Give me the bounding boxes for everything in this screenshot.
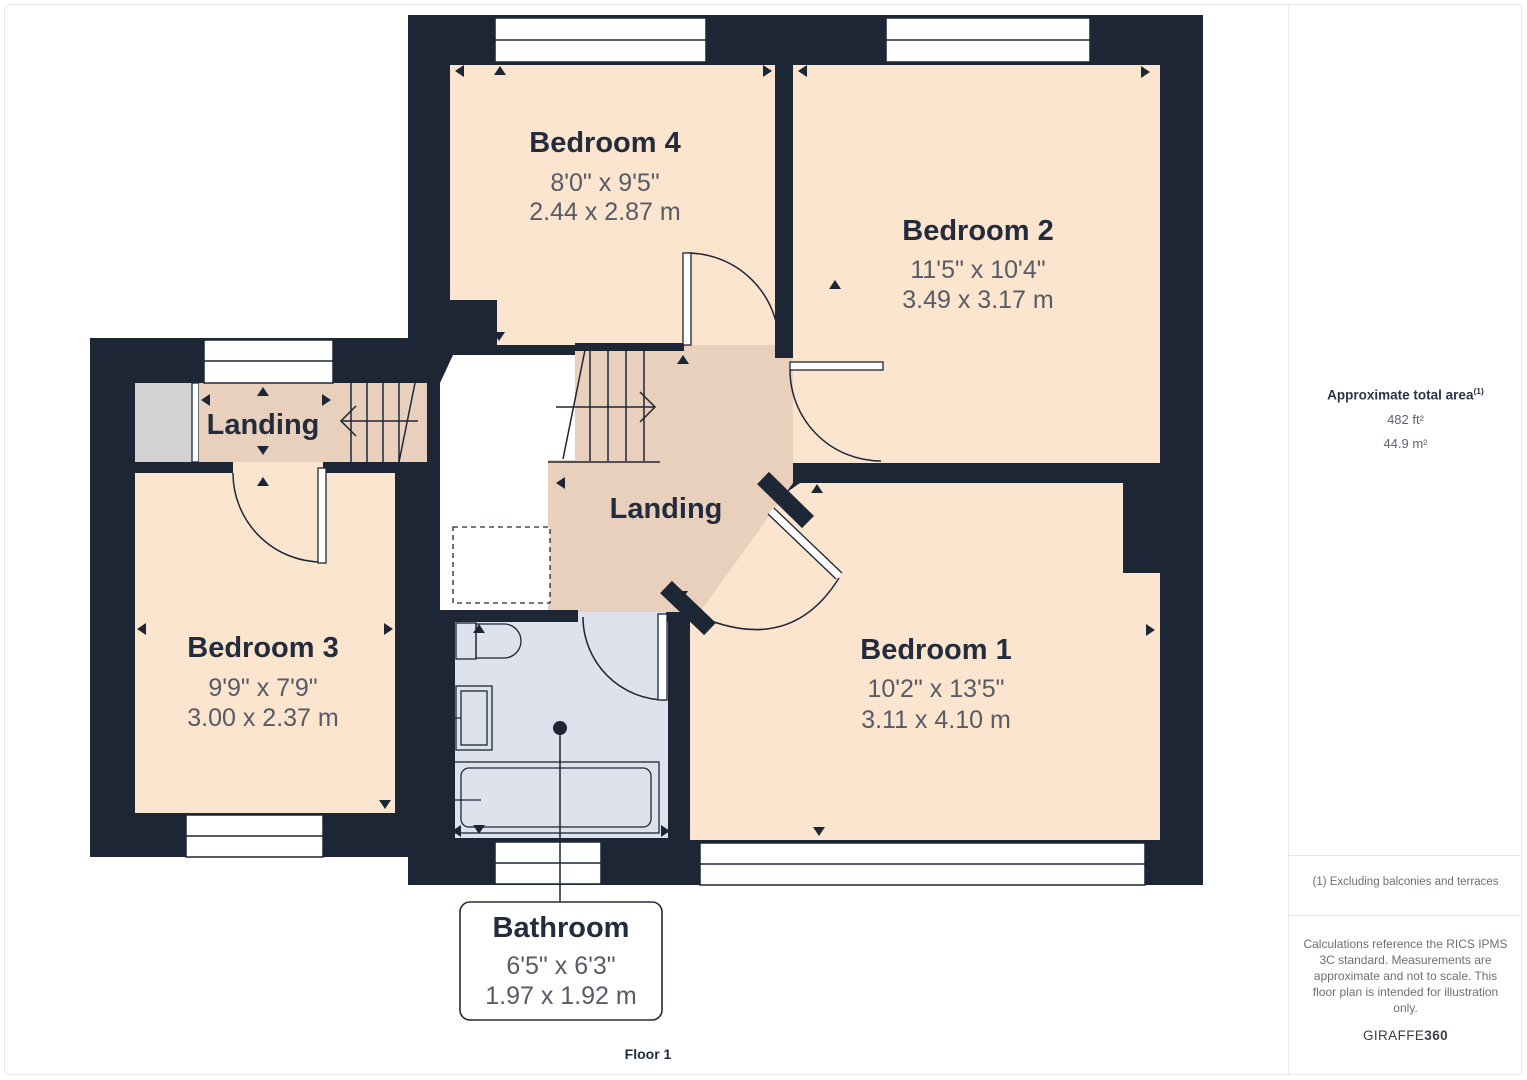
room-name: Bedroom 3 [187,632,338,664]
total-area-block: Approximate total area(1) 482 ft² 44.9 m… [1289,386,1522,451]
brand-logo: GIRAFFE360 [1289,1028,1522,1043]
total-area-metric: 44.9 m² [1289,436,1522,451]
room-dims-metric: 3.11 x 4.10 m [861,706,1011,734]
brand-prefix: GIRAFFE [1363,1028,1424,1043]
closet-floor [135,383,193,462]
total-area-footnote-ref: (1) [1473,386,1483,396]
sidebar-divider [1289,915,1522,916]
room-name: Bathroom [493,912,630,944]
closet-partition [192,383,199,462]
room-name: Bedroom 1 [860,634,1011,666]
sidebar-divider [1289,855,1522,856]
room-dims-imperial: 8'0" x 9'5" [550,169,659,197]
bedroom-1-label: Bedroom 1 10'2" x 13'5" 3.11 x 4.10 m [860,634,1011,734]
area-footnote: (1) Excluding balconies and terraces [1289,876,1522,888]
wall-stub-bedroom2 [775,345,793,358]
room-dims-metric: 2.44 x 2.87 m [529,198,680,226]
floor-plan-svg: Bedroom 4 8'0" x 9'5" 2.44 x 2.87 m Bedr… [0,0,1290,1080]
window-bedroom2-top [886,18,1090,62]
window-bedroom3-bottom [186,815,323,857]
bathroom-callout-label: Bathroom 6'5" x 6'3" 1.97 x 1.92 m [485,912,636,1010]
room-dims-imperial: 9'9" x 7'9" [208,674,317,702]
bedroom-2-label: Bedroom 2 11'5" x 10'4" 3.49 x 3.17 m [902,215,1053,314]
room-name: Bedroom 4 [529,127,680,159]
floor-plan-page: Bedroom 4 8'0" x 9'5" 2.44 x 2.87 m Bedr… [0,0,1527,1080]
room-dims-metric: 1.97 x 1.92 m [485,982,636,1010]
window-bedroom1-bottom [700,843,1145,885]
landing-left-label: Landing [207,409,320,441]
room-name: Bedroom 2 [902,215,1053,247]
info-sidebar: Approximate total area(1) 482 ft² 44.9 m… [1288,4,1522,1075]
total-area-imperial: 482 ft² [1289,412,1522,427]
landing-center-label: Landing [610,493,723,525]
wall-bedroom4-bottom [575,343,684,351]
window-landing-left [204,340,333,383]
window-bathroom-bottom [495,842,601,884]
room-dims-imperial: 11'5" x 10'4" [910,256,1045,284]
disclaimer-text: Calculations reference the RICS IPMS 3C … [1303,936,1508,1016]
floor-label: Floor 1 [625,1046,672,1062]
room-dims-imperial: 6'5" x 6'3" [506,952,615,980]
room-dims-imperial: 10'2" x 13'5" [867,675,1004,703]
room-dims-metric: 3.49 x 3.17 m [902,286,1053,314]
bedroom-3-label: Bedroom 3 9'9" x 7'9" 3.00 x 2.37 m [187,632,338,732]
cupboard [453,527,550,603]
bedroom-4-label: Bedroom 4 8'0" x 9'5" 2.44 x 2.87 m [529,127,680,226]
total-area-title-text: Approximate total area [1327,388,1473,403]
room-dims-metric: 3.00 x 2.37 m [187,704,338,732]
bedroom-3-door-opening [233,462,323,474]
wall-bathroom-top [440,610,578,622]
brand-suffix: 360 [1424,1028,1448,1043]
total-area-title: Approximate total area(1) [1289,386,1522,403]
bathroom-leader-dot [553,721,567,735]
window-bedroom4-top [495,18,706,62]
